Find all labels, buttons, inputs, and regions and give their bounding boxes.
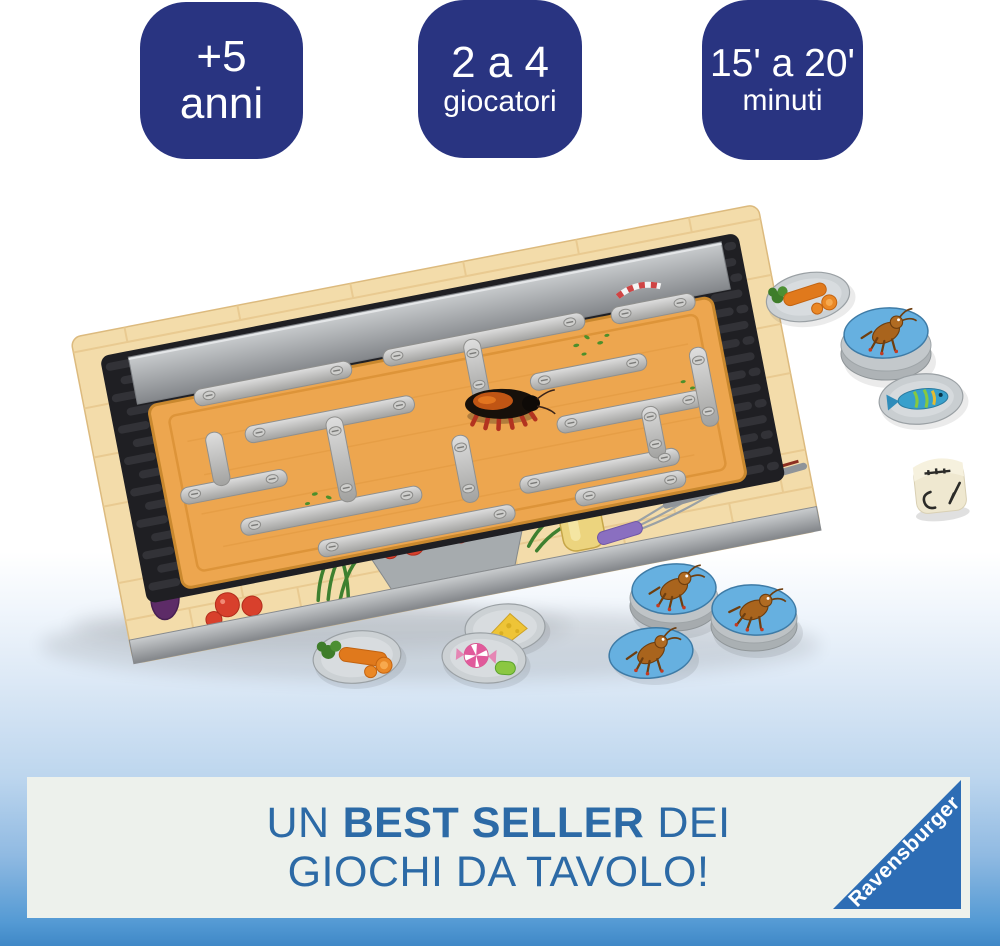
- players-badge: 2 a 4 giocatori: [418, 0, 582, 158]
- product-image: +5 anni 2 a 4 giocatori 15' a 20' minuti: [0, 0, 1000, 946]
- ravensburger-logo: Ravensburger: [27, 777, 970, 918]
- players-badge-value: 2 a 4: [451, 40, 549, 87]
- duration-badge-label: minuti: [742, 85, 822, 117]
- cockroach-token-stack-b: [711, 583, 803, 658]
- game-photo: [0, 185, 1000, 700]
- age-badge: +5 anni: [140, 2, 303, 159]
- symbol-die: [910, 456, 970, 524]
- duration-badge-value: 15' a 20': [710, 43, 855, 84]
- green-candy-icon: [495, 661, 516, 675]
- cockroach-token-stack-a: [630, 562, 724, 639]
- players-badge-label: giocatori: [443, 86, 556, 118]
- age-badge-label: anni: [180, 81, 263, 128]
- bestseller-panel: UN BEST SELLER DEI GIOCHI DA TAVOLO! Rav…: [27, 777, 970, 918]
- age-badge-value: +5: [196, 34, 246, 81]
- duration-badge: 15' a 20' minuti: [702, 0, 863, 160]
